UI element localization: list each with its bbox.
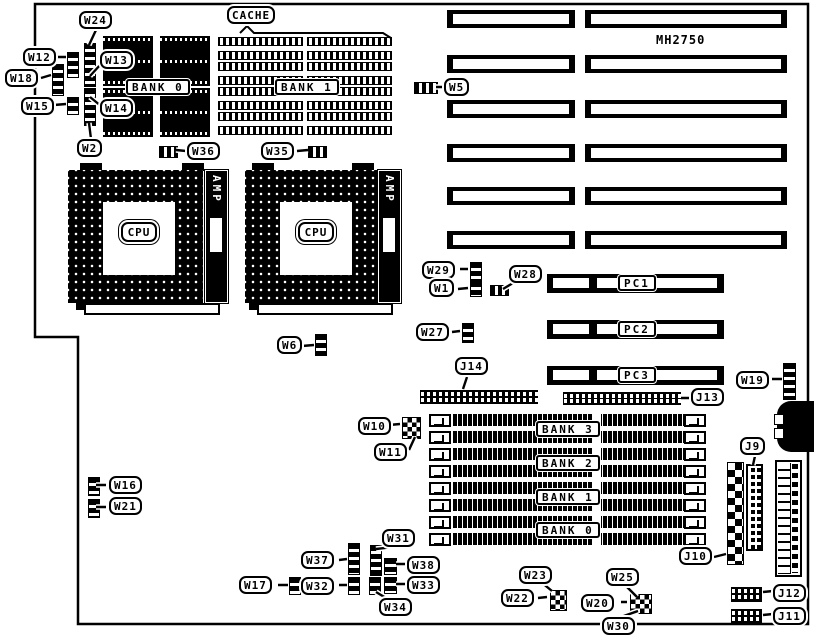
slot-stripe: [591, 235, 781, 245]
w6-jumper: [315, 334, 327, 356]
isa-slot: [585, 55, 787, 73]
cache-socket: [218, 112, 303, 135]
slot-stripe: [453, 191, 569, 201]
callout-w10: W10: [358, 417, 391, 435]
callout-w5: W5: [444, 78, 469, 96]
amp-connector: AMP: [378, 170, 401, 303]
w38-jumper: [384, 558, 397, 575]
callout-w14: W14: [100, 99, 133, 117]
w31-jumper: [370, 545, 382, 576]
socket-base: [257, 303, 393, 315]
callout-w30: W30: [602, 617, 635, 635]
w18-jumper: [52, 64, 64, 96]
callout-w38: W38: [407, 556, 440, 574]
w15-jumper: [67, 97, 79, 115]
slot-stripe: [453, 104, 569, 114]
callout-w22: W22: [501, 589, 534, 607]
isa-slot: [585, 231, 787, 249]
slot-stripe: [591, 148, 781, 158]
callout-w23: W23: [519, 566, 552, 584]
callout-w37: W37: [301, 551, 334, 569]
motherboard-diagram: MH2750 BANK 0 BANK 1 CPU AMP CPU AMP PC1: [0, 0, 816, 641]
cache-socket: [307, 112, 392, 135]
callout-j13: J13: [691, 388, 724, 406]
cache-socket: [218, 37, 303, 60]
w20-w25-w30-jumper: [630, 594, 652, 614]
callout-w11: W11: [374, 443, 407, 461]
isa-slot: [447, 100, 575, 118]
callout-cache: CACHE: [227, 6, 275, 24]
pc2-label: PC2: [618, 321, 656, 337]
w32-jumper: [348, 577, 360, 595]
callout-j11: J11: [773, 607, 806, 625]
cache-chip: [160, 88, 210, 137]
isa-slot: [447, 144, 575, 162]
simm-bank3-label: BANK 3: [536, 421, 600, 437]
j12-connector: [731, 587, 762, 602]
callout-w18: W18: [5, 69, 38, 87]
w27-jumper: [462, 323, 474, 343]
pc2-slot: PC2: [547, 320, 724, 339]
isa-slot: [585, 187, 787, 205]
callout-j12: J12: [773, 584, 806, 602]
callout-w1: W1: [429, 279, 454, 297]
isa-slot: [585, 100, 787, 118]
callout-w28: W28: [509, 265, 542, 283]
cache-bank1-label: BANK 1: [275, 79, 339, 95]
cpu-socket: CPU: [68, 170, 203, 303]
slot-stripe: [453, 14, 569, 24]
cpu-label: CPU: [298, 222, 334, 242]
cache-socket: [307, 37, 392, 60]
callout-w31: W31: [382, 529, 415, 547]
callout-w35: W35: [261, 142, 294, 160]
w24-jumper: [84, 43, 96, 87]
connector-notch: [774, 428, 784, 439]
callout-w15: W15: [21, 97, 54, 115]
w34-jumper: [369, 577, 381, 595]
callout-w19: W19: [736, 371, 769, 389]
w2-jumper: [84, 88, 96, 126]
w33-jumper: [384, 577, 397, 594]
j10-connector: [727, 462, 744, 565]
connector-notch: [774, 414, 784, 425]
board-model-text: MH2750: [656, 33, 705, 47]
isa-slot: [447, 55, 575, 73]
callout-w2: W2: [77, 139, 102, 157]
amp-label: AMP: [210, 175, 223, 204]
callout-w34: W34: [379, 598, 412, 616]
w21-jumper: [88, 499, 100, 518]
callout-w36: W36: [187, 142, 220, 160]
pc1-label: PC1: [618, 275, 656, 291]
amp-connector: AMP: [205, 170, 228, 303]
w1-jumper: [470, 281, 482, 297]
callout-w32: W32: [301, 577, 334, 595]
w35-jumper: [308, 146, 327, 158]
slot-stripe: [453, 148, 569, 158]
callout-w12: W12: [23, 48, 56, 66]
callout-w13: W13: [100, 51, 133, 69]
slot-stripe: [591, 59, 781, 69]
callout-w16: W16: [109, 476, 142, 494]
pc1-slot: PC1: [547, 274, 724, 293]
callout-j10: J10: [679, 547, 712, 565]
keyboard-connector: [777, 401, 814, 452]
isa-slot: [447, 231, 575, 249]
w10-w11-jumper: [402, 417, 421, 439]
amp-label: AMP: [383, 175, 396, 204]
simm-bank2-label: BANK 2: [536, 455, 600, 471]
amp-window: [383, 218, 395, 252]
cpu-label: CPU: [121, 222, 157, 242]
isa-slot: [585, 144, 787, 162]
slot-stripe: [591, 191, 781, 201]
callout-w21: W21: [109, 497, 142, 515]
callout-w20: W20: [581, 594, 614, 612]
cpu-socket: CPU: [245, 170, 380, 303]
isa-slot: [585, 10, 787, 28]
cache-bank0-label: BANK 0: [126, 79, 190, 95]
simm-bank0-label: BANK 0: [536, 522, 600, 538]
callout-j14: J14: [455, 357, 488, 375]
w16-jumper: [88, 477, 100, 496]
callout-w24: W24: [79, 11, 112, 29]
slot-stripe: [591, 104, 781, 114]
j13-connector: [563, 392, 681, 405]
w22-w23-jumper: [550, 590, 567, 611]
w29-jumper: [470, 262, 482, 282]
j11-connector: [731, 609, 762, 624]
callout-w6: W6: [277, 336, 302, 354]
w37-jumper: [348, 543, 360, 575]
slot-stripe: [453, 235, 569, 245]
j14-connector: [420, 390, 538, 404]
slot-stripe: [453, 59, 569, 69]
w28-jumper: [490, 285, 509, 296]
callout-j9: J9: [740, 437, 765, 455]
w12-jumper: [67, 52, 79, 78]
slot-stripe: [591, 14, 781, 24]
w19-jumper: [783, 363, 796, 400]
callout-w25: W25: [606, 568, 639, 586]
isa-slot: [447, 10, 575, 28]
callout-w27: W27: [416, 323, 449, 341]
callout-w33: W33: [407, 576, 440, 594]
j9-connector: [746, 464, 763, 551]
w36-jumper: [159, 146, 178, 158]
simm-bank1-label: BANK 1: [536, 489, 600, 505]
amp-window: [210, 218, 222, 252]
pc3-label: PC3: [618, 367, 656, 383]
w5-jumper: [414, 82, 438, 94]
callout-w17: W17: [239, 576, 272, 594]
callout-w29: W29: [422, 261, 455, 279]
power-connector: [775, 460, 802, 577]
isa-slot: [447, 187, 575, 205]
socket-base: [84, 303, 220, 315]
w17-jumper: [289, 577, 301, 595]
pc3-slot: PC3: [547, 366, 724, 385]
